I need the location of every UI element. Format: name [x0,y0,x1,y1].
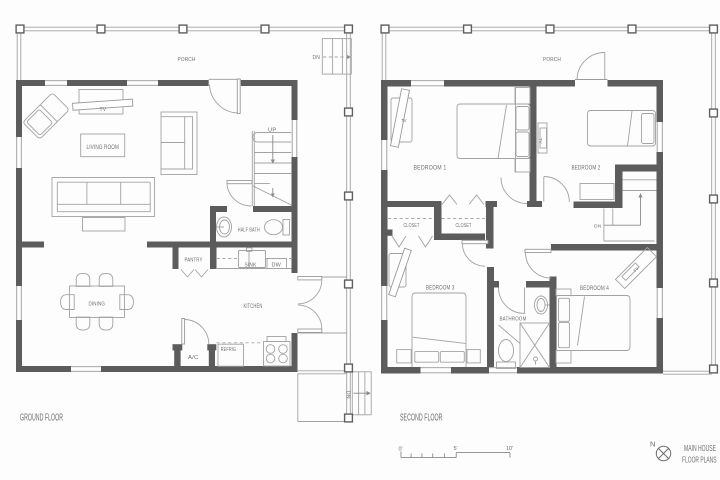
svg-text:LIVING ROOM: LIVING ROOM [87,144,120,151]
svg-text:PANTRY: PANTRY [185,257,203,263]
svg-text:DN: DN [344,391,350,399]
svg-text:SECOND FLOOR: SECOND FLOOR [400,413,443,424]
svg-text:10': 10' [506,446,513,452]
svg-text:HALF BATH: HALF BATH [238,227,260,233]
svg-text:CLOSET: CLOSET [404,223,420,229]
svg-text:BEDROOM 1: BEDROOM 1 [414,166,447,172]
svg-text:UP: UP [268,128,277,134]
svg-text:DINING: DINING [89,301,106,307]
svg-text:KITCHEN: KITCHEN [244,303,263,310]
svg-text:A/C: A/C [188,355,199,361]
svg-text:REFRIG: REFRIG [221,347,237,353]
svg-text:5': 5' [454,446,458,452]
svg-text:FLOOR PLANS: FLOOR PLANS [682,455,717,465]
svg-text:PORCH: PORCH [178,57,196,63]
svg-text:BEDROOM 4: BEDROOM 4 [580,286,609,292]
svg-text:TV: TV [538,138,543,144]
svg-text:TV: TV [401,118,407,123]
svg-text:GROUND FLOOR: GROUND FLOOR [20,413,63,424]
svg-text:DW: DW [272,262,282,268]
svg-text:DN: DN [313,55,321,61]
svg-text:CLOSET: CLOSET [456,223,472,229]
svg-text:N: N [650,440,655,449]
svg-text:MAIN HOUSE: MAIN HOUSE [684,443,716,453]
svg-text:BEDROOM 2: BEDROOM 2 [572,166,601,172]
svg-text:SINK: SINK [245,262,257,268]
svg-text:0': 0' [399,447,403,453]
svg-text:PORCH: PORCH [543,57,561,63]
svg-text:TV: TV [100,107,107,113]
svg-text:BATHROOM: BATHROOM [500,317,527,323]
svg-text:DN: DN [594,224,602,230]
svg-text:BEDROOM 3: BEDROOM 3 [426,285,455,291]
